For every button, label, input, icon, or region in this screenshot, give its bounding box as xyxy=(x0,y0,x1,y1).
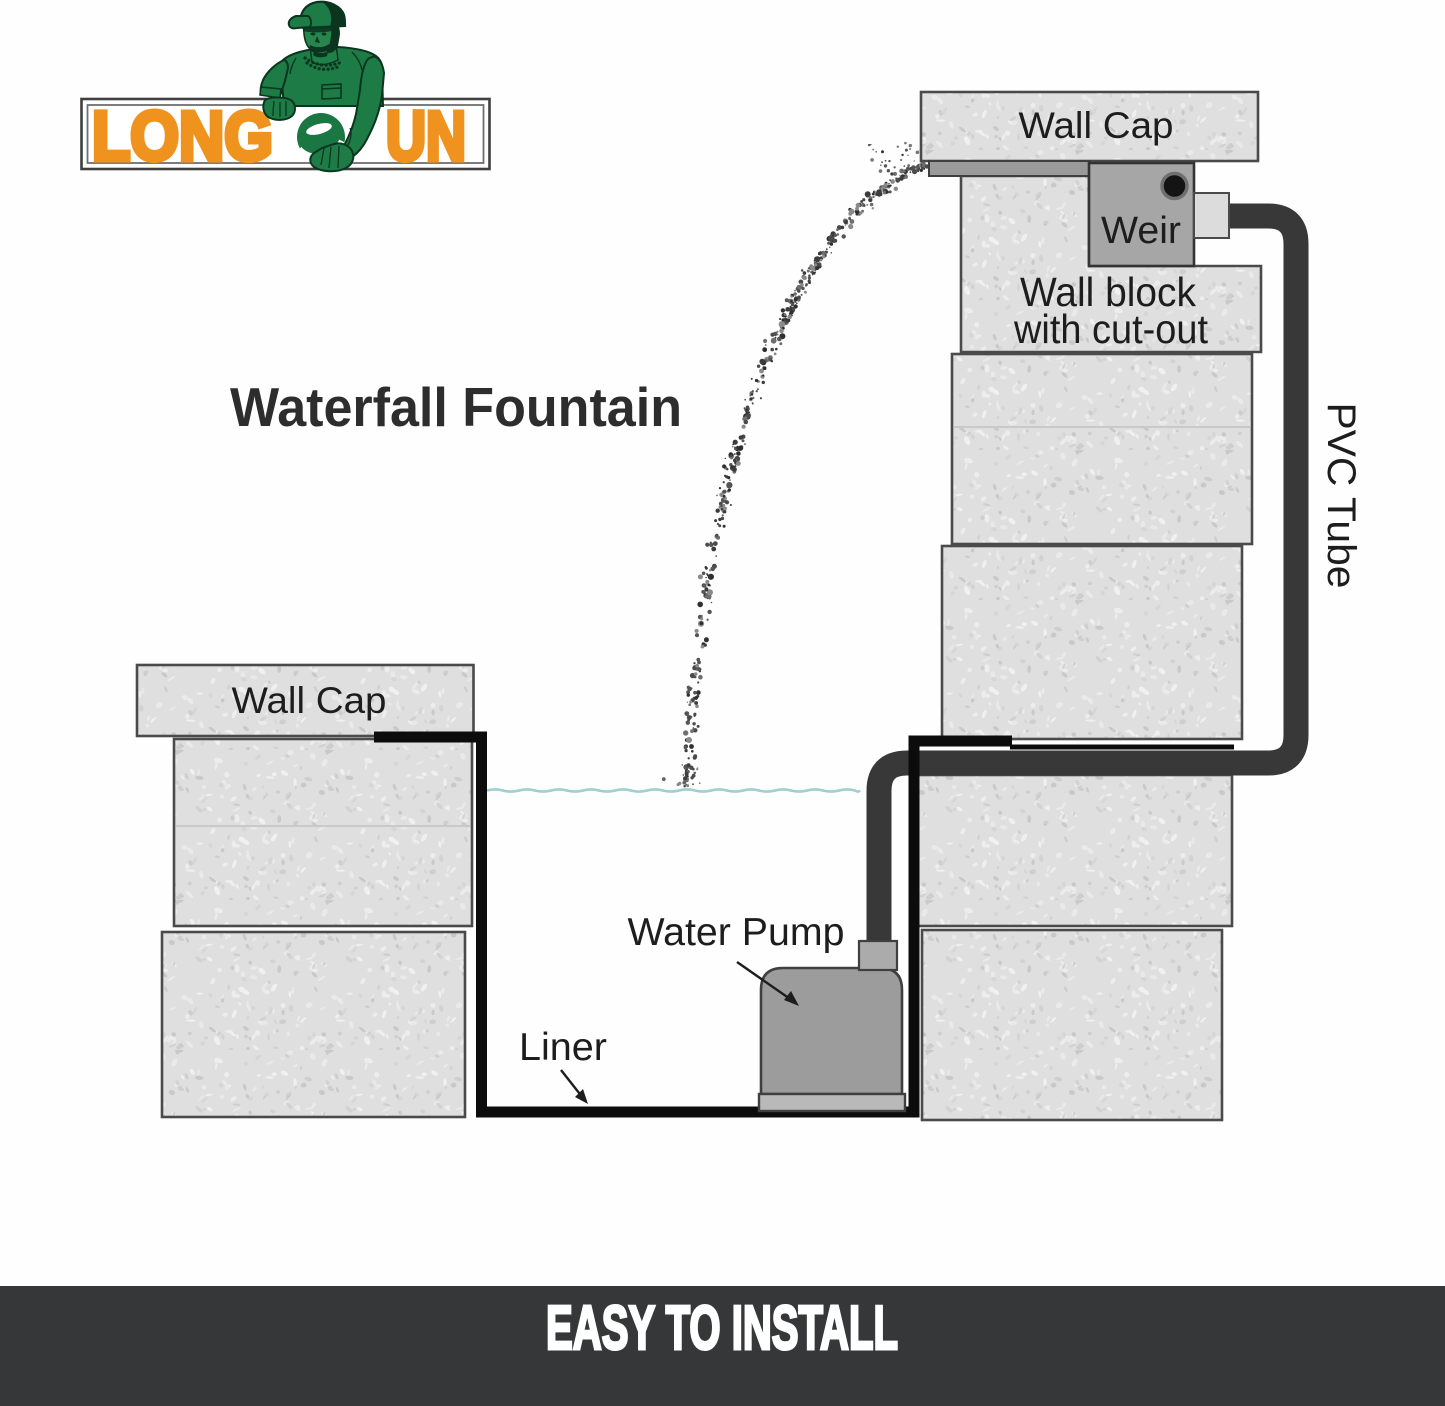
svg-text:PVC Tube: PVC Tube xyxy=(1319,403,1363,589)
svg-text:Water Pump: Water Pump xyxy=(628,911,845,954)
svg-text:UN: UN xyxy=(386,97,466,175)
svg-text:EASY TO INSTALL: EASY TO INSTALL xyxy=(546,1294,898,1363)
svg-text:LONG: LONG xyxy=(92,97,273,175)
svg-text:Weir: Weir xyxy=(1101,210,1181,252)
svg-text:with cut-out: with cut-out xyxy=(1013,306,1208,352)
svg-text:Liner: Liner xyxy=(519,1026,607,1069)
svg-text:Waterfall Fountain: Waterfall Fountain xyxy=(230,376,682,438)
svg-text:Wall Cap: Wall Cap xyxy=(1019,105,1174,146)
svg-text:Wall Cap: Wall Cap xyxy=(232,680,387,721)
